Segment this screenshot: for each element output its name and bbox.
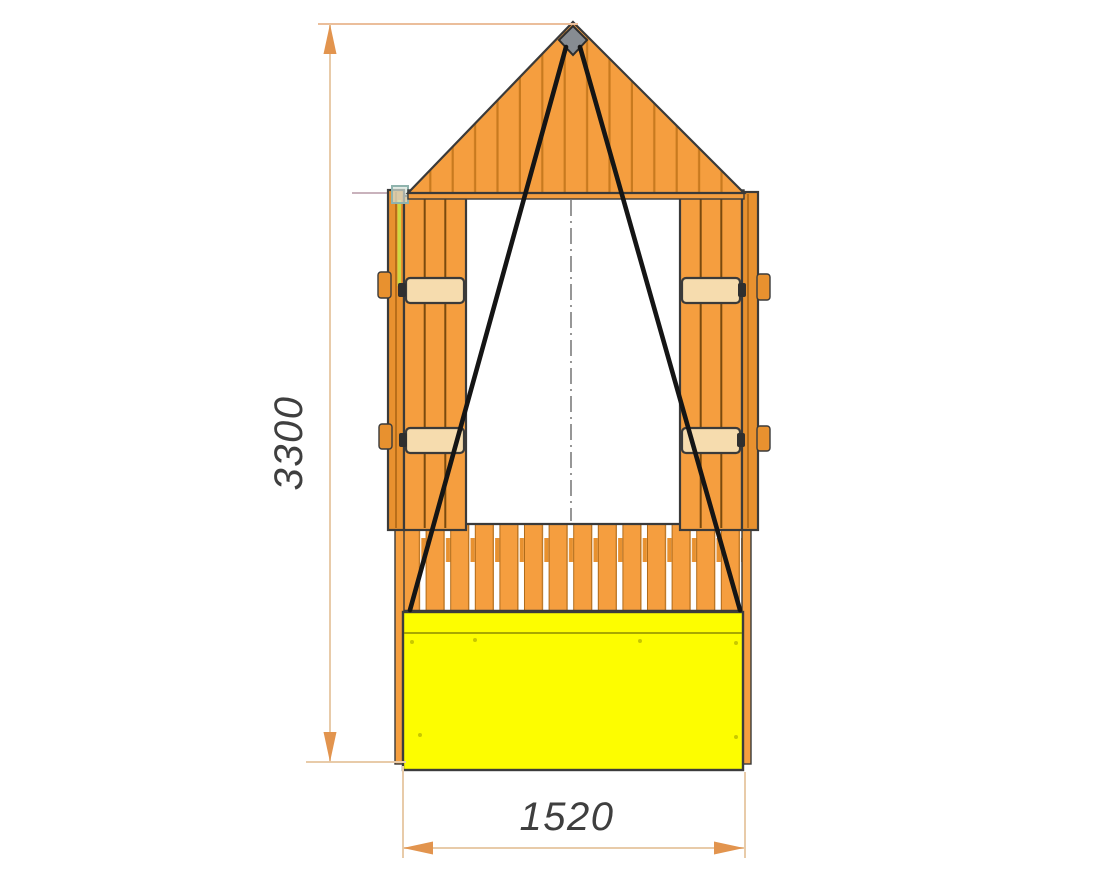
height-dimension-label: 3300	[267, 396, 311, 491]
right-latch-tab-upper	[757, 274, 770, 300]
right-shutter	[680, 192, 770, 530]
right-shutter-panel	[680, 196, 742, 530]
left-crossbar-upper	[406, 278, 464, 303]
drawing-canvas: 3300 1520	[0, 0, 1110, 879]
left-latch-tab-lower	[379, 424, 392, 449]
right-latch-tab-lower	[757, 426, 770, 451]
baluster-railing	[400, 524, 745, 611]
bolt	[398, 283, 406, 297]
sandbox	[403, 612, 743, 770]
elevation-drawing: 3300 1520	[0, 0, 1110, 879]
left-latch-tab-upper	[378, 272, 391, 298]
left-shutter	[378, 186, 466, 530]
edge-strip	[398, 200, 402, 286]
bolt	[738, 283, 746, 297]
width-dimension-label: 1520	[520, 795, 615, 839]
bolt	[399, 433, 407, 447]
hinge-bracket-icon	[392, 186, 408, 203]
left-shutter-panel	[404, 196, 466, 530]
right-crossbar-upper	[682, 278, 740, 303]
right-shutter-post	[742, 192, 758, 530]
sandbox-body	[403, 612, 743, 770]
bolt	[737, 433, 745, 447]
